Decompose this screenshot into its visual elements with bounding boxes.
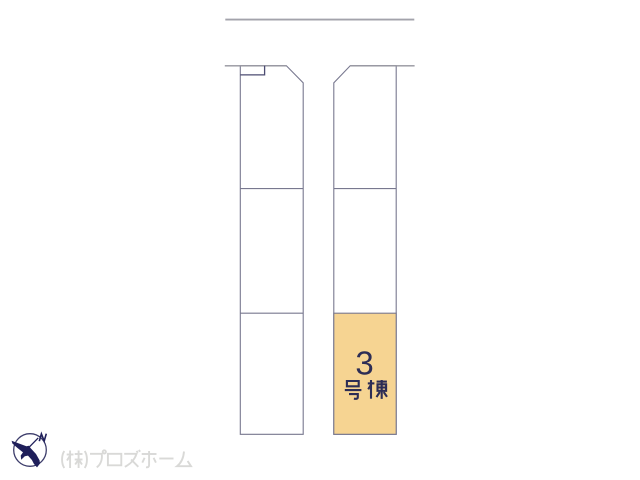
svg-text:3: 3 <box>355 345 373 382</box>
